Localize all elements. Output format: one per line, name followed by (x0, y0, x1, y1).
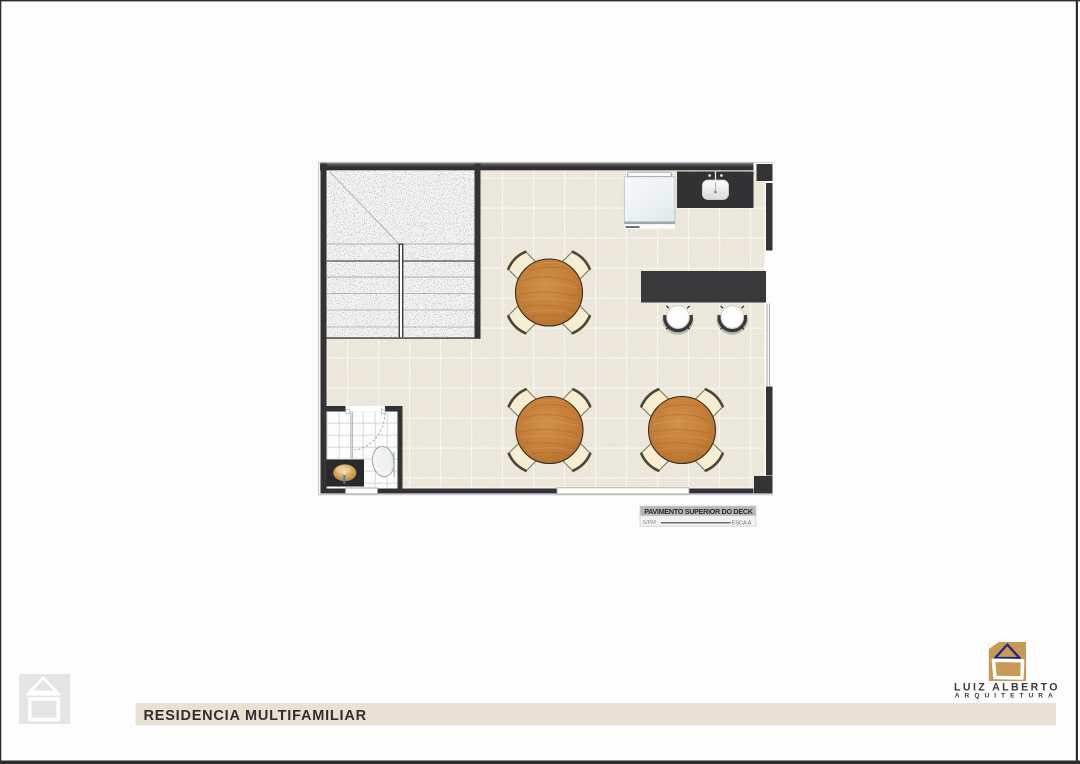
svg-text:ESCA A: ESCA A (732, 520, 752, 526)
svg-text:ARQUITETURA: ARQUITETURA (955, 693, 1058, 700)
svg-text:RESIDENCIA MULTIFAMILIAR: RESIDENCIA MULTIFAMILIAR (144, 708, 367, 724)
svg-text:S/PM: S/PM (643, 520, 657, 526)
svg-text:PAVIMENTO SUPERIOR DO DECK: PAVIMENTO SUPERIOR DO DECK (644, 507, 754, 516)
